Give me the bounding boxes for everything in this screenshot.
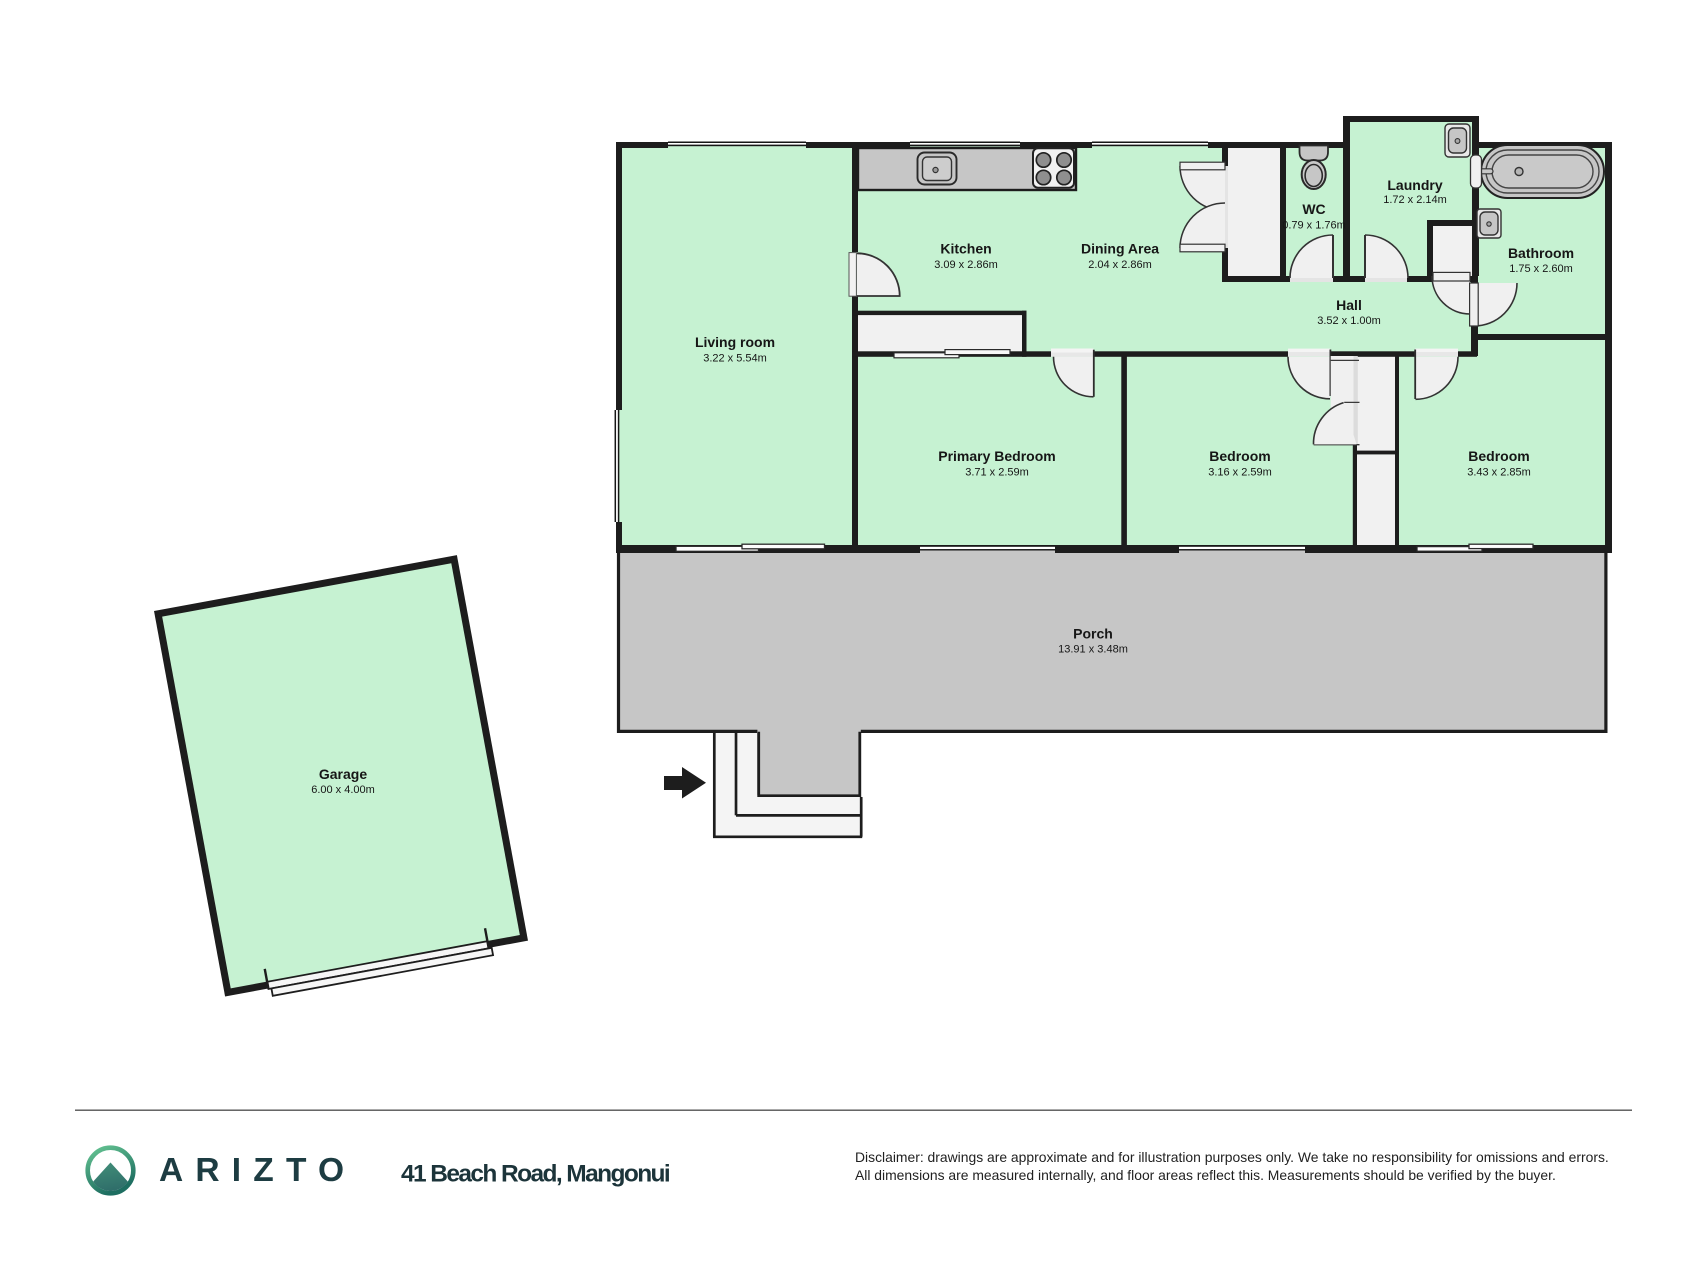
svg-text:2.04 x 2.86m: 2.04 x 2.86m <box>1088 259 1152 271</box>
svg-text:3.43 x 2.85m: 3.43 x 2.85m <box>1467 467 1531 479</box>
svg-text:WC: WC <box>1302 201 1325 217</box>
svg-text:41 Beach Road, Mangonui: 41 Beach Road, Mangonui <box>401 1161 670 1188</box>
svg-text:3.71 x 2.59m: 3.71 x 2.59m <box>965 467 1029 479</box>
svg-text:1.72 x 2.14m: 1.72 x 2.14m <box>1383 194 1447 206</box>
svg-text:0.79 x 1.76m: 0.79 x 1.76m <box>1282 220 1346 232</box>
svg-text:Primary Bedroom: Primary Bedroom <box>938 448 1055 464</box>
svg-text:Bathroom: Bathroom <box>1508 245 1574 261</box>
svg-text:3.52 x 1.00m: 3.52 x 1.00m <box>1317 315 1381 327</box>
svg-text:Laundry: Laundry <box>1387 177 1442 193</box>
svg-text:All dimensions are measured in: All dimensions are measured internally, … <box>855 1167 1556 1183</box>
svg-text:1.75 x 2.60m: 1.75 x 2.60m <box>1509 263 1573 275</box>
svg-text:Dining Area: Dining Area <box>1081 241 1159 257</box>
svg-text:3.09 x 2.86m: 3.09 x 2.86m <box>934 259 998 271</box>
svg-text:Porch: Porch <box>1073 626 1113 642</box>
svg-text:Bedroom: Bedroom <box>1468 448 1529 464</box>
svg-text:Kitchen: Kitchen <box>940 241 991 257</box>
svg-text:ARIZTO: ARIZTO <box>159 1152 356 1189</box>
svg-text:3.16 x 2.59m: 3.16 x 2.59m <box>1208 467 1272 479</box>
svg-text:Disclaimer: drawings are appro: Disclaimer: drawings are approximate and… <box>855 1149 1609 1165</box>
svg-text:Hall: Hall <box>1336 297 1362 313</box>
svg-text:Garage: Garage <box>319 766 367 782</box>
svg-text:13.91 x 3.48m: 13.91 x 3.48m <box>1058 644 1128 656</box>
svg-text:3.22 x 5.54m: 3.22 x 5.54m <box>703 353 767 365</box>
svg-text:6.00 x 4.00m: 6.00 x 4.00m <box>311 784 375 796</box>
svg-text:Living room: Living room <box>695 334 775 350</box>
svg-text:Bedroom: Bedroom <box>1209 448 1270 464</box>
